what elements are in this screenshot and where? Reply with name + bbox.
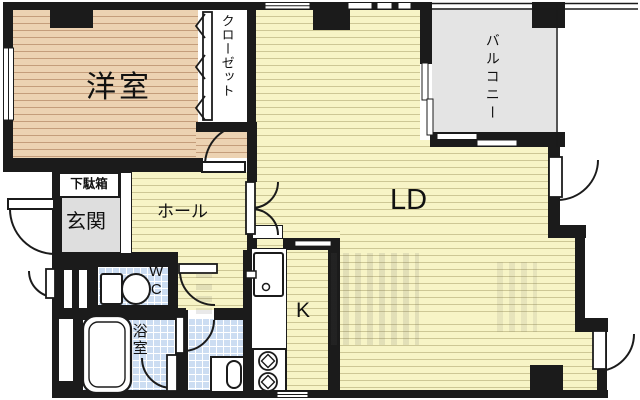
hall-kitchen-opening (252, 225, 283, 239)
entrance-door-swing (8, 199, 55, 254)
room-bath-label: 浴室 (131, 323, 147, 357)
room-kitchen-label: K (296, 300, 310, 322)
room-ld-label: LD (390, 185, 427, 215)
floor-plan: 下駄箱 (0, 0, 640, 400)
wall-hall-ld-upper (247, 122, 257, 182)
room-corridor-floor (178, 250, 245, 310)
wall-left-upper (3, 2, 13, 172)
wall-washroom-right (243, 250, 251, 390)
pipe-space-b (78, 269, 88, 309)
room-western-floor-ext (196, 132, 247, 158)
wall-western-bottom (3, 158, 203, 172)
tall-cabinet (120, 172, 132, 254)
kitchen-counter (251, 248, 287, 392)
room-hall-label: ホール (157, 203, 208, 221)
wall-right-lower (597, 325, 607, 398)
wall-right-mid (575, 228, 585, 325)
room-entrance-label: 玄関 (66, 212, 106, 233)
pillar-balcony (532, 2, 565, 28)
room-ld-floor (340, 228, 575, 318)
room-closet-label: クローゼット (220, 14, 234, 98)
room-balcony-label: バルコニー (485, 33, 500, 123)
wall-bottom (52, 390, 608, 398)
wall-kitchen-top (283, 238, 332, 250)
shoe-cabinet-label: 下駄箱 (70, 178, 108, 191)
wall-closet-bottom (196, 122, 247, 132)
folding-closet-door-icon (196, 12, 212, 120)
pillar-ld-top (313, 8, 350, 30)
pillar-bottom-right (530, 365, 563, 392)
wall-right-upper (548, 140, 560, 232)
room-washroom-floor (188, 318, 243, 390)
pipe-space-a (63, 269, 73, 309)
wall-closet-right (247, 2, 256, 132)
wall-balcony-left (420, 2, 432, 64)
room-wc-label: WC (148, 263, 164, 299)
pipe-space-c (58, 318, 74, 382)
wall-corridor-bottom-b (214, 308, 245, 320)
wall-kitchen-ld (328, 238, 340, 390)
wall-balcony-bottom (430, 132, 565, 147)
wall-bath-washroom (175, 310, 188, 390)
pillar-western (50, 10, 93, 28)
wall-top (3, 2, 432, 10)
shoe-cabinet-box: 下駄箱 (58, 172, 120, 198)
room-western-label: 洋室 (86, 72, 152, 104)
